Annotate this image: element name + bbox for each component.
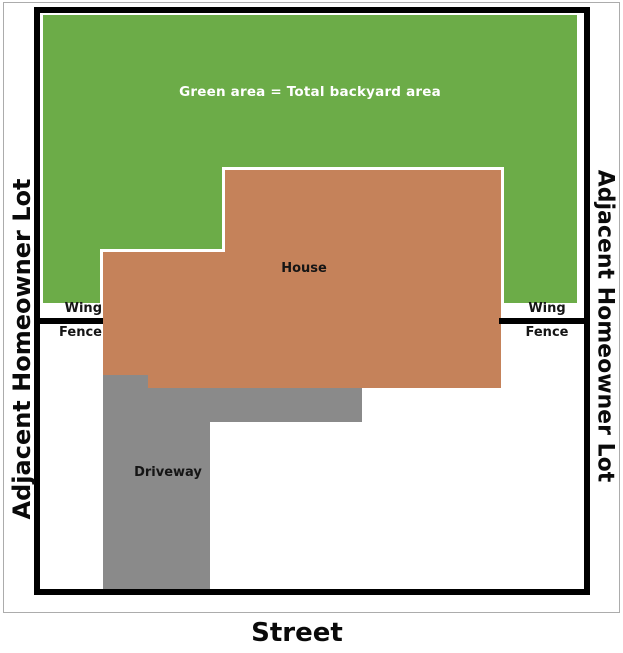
driveway-label: Driveway <box>110 465 226 480</box>
lot-diagram: Green area = Total backyard area House D… <box>0 0 623 653</box>
adjacent-lot-left-label: Adjacent Homeowner Lot <box>8 179 36 520</box>
adjacent-lot-right-label: Adjacent Homeowner Lot <box>593 170 618 483</box>
wing-fence-left-line <box>40 318 103 324</box>
wing-fence-right-wing-label: Wing <box>504 301 590 316</box>
house-label: House <box>225 261 383 276</box>
street-label: Street <box>172 618 422 648</box>
wing-fence-left-wing-label: Wing <box>42 301 102 316</box>
wing-fence-left-fence-label: Fence <box>42 325 102 340</box>
wing-fence-right-fence-label: Fence <box>504 325 590 340</box>
wing-fence-right-line <box>499 318 584 324</box>
